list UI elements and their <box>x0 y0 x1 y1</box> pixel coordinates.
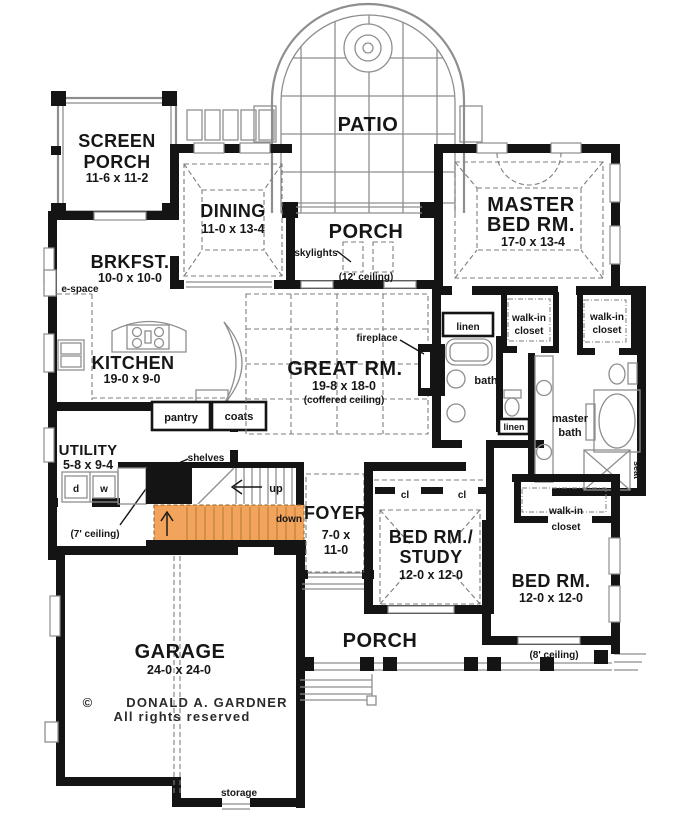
toilet-icon <box>609 363 637 384</box>
patio-area: PATIO <box>254 4 482 213</box>
porch-column <box>300 657 314 671</box>
vanity-icon <box>535 356 553 482</box>
e-space-label: e-space <box>61 284 99 295</box>
copyright-name: DONALD A. GARDNER <box>126 695 287 710</box>
master-dims: 17-0 x 13-4 <box>501 235 565 249</box>
sink-icon <box>447 404 465 422</box>
stairs-up-label: up <box>269 483 283 495</box>
great-room: GREAT RM. 19-8 x 18-0 (coffered ceiling)… <box>246 294 445 434</box>
foyer-dims1: 7-0 x <box>322 528 351 542</box>
bathtub-icon <box>446 339 492 365</box>
pantry-label: pantry <box>164 412 199 424</box>
dining-room: DINING 11-0 x 13-4 <box>184 143 282 276</box>
staircase: up down <box>146 462 306 547</box>
foyer-dims2: 11-0 <box>324 543 348 557</box>
master-bath-label2: bath <box>558 427 582 439</box>
ceiling-7-label: (7' ceiling) <box>70 529 119 540</box>
e-space-nook <box>44 270 56 296</box>
screen-porch: SCREEN PORCH 11-6 x 11-2 <box>51 91 177 218</box>
master-label1: MASTER <box>487 194 575 216</box>
foyer: FOYER 7-0 x 11-0 <box>304 474 368 572</box>
fireplace-icon <box>418 344 445 396</box>
storage-label: storage <box>221 788 258 799</box>
porch-column <box>487 657 501 671</box>
wall-bumpout <box>45 722 58 742</box>
kitchen-label: KITCHEN <box>92 353 175 373</box>
washer-dryer-icons: d w <box>62 472 118 502</box>
bed-rm-label: BED RM. <box>512 571 591 591</box>
patio-fountain-icon <box>344 24 392 72</box>
skylight <box>343 242 363 272</box>
rear-porch-label: PORCH <box>329 221 404 243</box>
porch-column <box>360 657 374 671</box>
bed-study-dims: 12-0 x 12-0 <box>399 568 463 582</box>
rear-porch: PORCH skylights (12' ceiling) <box>294 221 416 288</box>
patio-label: PATIO <box>338 114 399 136</box>
master-label2: BED RM. <box>487 214 575 236</box>
floor-plan-page: PATIO SCREEN PORCH 11-6 x 11-2 <box>0 0 700 830</box>
utility-label: UTILITY <box>59 442 118 459</box>
understair-closet <box>146 468 192 504</box>
floor-plan-drawing: PATIO SCREEN PORCH 11-6 x 11-2 <box>0 0 700 830</box>
screen-porch-dims: 11-6 x 11-2 <box>86 171 149 185</box>
garden-tub-icon <box>586 390 640 452</box>
garage-dims: 24-0 x 24-0 <box>147 663 211 677</box>
porch-column <box>464 657 478 671</box>
garage-label: GARAGE <box>135 641 226 663</box>
porch-post <box>51 146 61 155</box>
porch-column <box>383 657 397 671</box>
porch-post <box>51 91 66 106</box>
toilet-icon <box>504 390 521 416</box>
dining-label: DINING <box>200 201 265 221</box>
refrigerator-icon <box>58 340 84 370</box>
bar-counter-inner <box>224 322 236 404</box>
window <box>50 596 60 636</box>
kitchen-dims: 19-0 x 9-0 <box>104 372 161 386</box>
copyright-rights: All rights reserved <box>114 709 251 724</box>
bar-counter <box>224 322 242 404</box>
bed-rm-dims: 12-0 x 12-0 <box>519 591 583 605</box>
dining-dims: 11-0 x 13-4 <box>201 222 264 236</box>
closet-left-label: cl <box>401 490 410 501</box>
seat-label: seat <box>632 461 642 479</box>
porch-post <box>162 91 177 106</box>
window <box>44 428 54 462</box>
garage: GARAGE 24-0 x 24-0 © DONALD A. GARDNER A… <box>45 556 288 799</box>
brkfst-dims: 10-0 x 10-0 <box>98 271 162 285</box>
master-bath-label1: master <box>552 413 589 425</box>
kitchen-island <box>112 322 186 353</box>
linen-top-label: linen <box>456 322 479 333</box>
shower-icon <box>584 450 630 490</box>
utility-dims: 5-8 x 9-4 <box>63 458 113 472</box>
window <box>518 637 580 644</box>
master-bath: master bath seat <box>535 294 646 496</box>
screen-porch-label1: SCREEN <box>78 131 155 151</box>
screen-porch-label2: PORCH <box>83 152 150 172</box>
porch-steps-right <box>614 654 646 670</box>
window <box>551 143 581 153</box>
walkin3-label2: closet <box>552 522 582 533</box>
breakfast-kitchen: BRKFST. 10-0 x 10-0 e-space KITCHEN 19-0… <box>44 212 266 430</box>
porch-column <box>594 650 608 664</box>
walkin2-label1: walk-in <box>589 312 624 323</box>
master-bedroom: MASTER BED RM. 17-0 x 13-4 <box>455 143 620 278</box>
walkin-closet-2: walk-in closet <box>577 292 638 355</box>
dryer-label: d <box>73 484 79 495</box>
window <box>610 226 620 264</box>
bed-study-label1: BED RM./ <box>389 527 473 547</box>
brkfst-label: BRKFST. <box>91 252 170 272</box>
porch-column <box>540 657 554 671</box>
window <box>388 606 454 613</box>
skylights-label: skylights <box>294 248 338 259</box>
shelves-closet <box>118 468 146 504</box>
great-rm-label: GREAT RM. <box>287 358 402 380</box>
stairs-down-label: down <box>276 514 302 525</box>
window <box>44 334 54 372</box>
walkin1-label2: closet <box>515 326 545 337</box>
window <box>609 538 620 574</box>
master-bed-arch <box>497 153 561 185</box>
bedroom-study: cl cl BED RM./ STUDY 12-0 x 12-0 <box>364 462 494 614</box>
window <box>477 143 507 153</box>
washer-label: w <box>99 484 108 495</box>
bedroom-2: walk-in closet BED RM. 12-0 x 12-0 (8' c… <box>482 474 620 661</box>
great-rm-ceiling-label: (coffered ceiling) <box>304 395 385 406</box>
fireplace-label: fireplace <box>356 333 398 344</box>
closet-right-label: cl <box>458 490 467 501</box>
toilet-icon <box>447 370 465 388</box>
rear-porch-ceiling-label: (12' ceiling) <box>339 272 394 283</box>
window <box>240 143 270 153</box>
walkin2-label2: closet <box>593 325 623 336</box>
door-opening <box>94 212 146 220</box>
walkin-closet-1: walk-in closet <box>501 292 559 353</box>
window <box>609 586 620 622</box>
skylight <box>373 242 393 272</box>
walkin3-label1: walk-in <box>548 506 583 517</box>
linen-mid-label: linen <box>503 422 524 432</box>
rear-porch-post <box>420 202 436 218</box>
bed-study-label2: STUDY <box>399 547 462 567</box>
foyer-ceiling <box>306 474 364 572</box>
bath-label: bath <box>474 375 498 387</box>
foyer-label: FOYER <box>304 503 368 523</box>
window <box>610 164 620 202</box>
coats-label: coats <box>225 411 254 423</box>
great-rm-dims: 19-8 x 18-0 <box>312 379 376 393</box>
porch-steps-left <box>300 674 376 705</box>
window <box>194 143 224 153</box>
front-porch-label: PORCH <box>343 630 418 652</box>
window <box>301 281 333 288</box>
rear-porch-post <box>282 202 298 218</box>
copyright-symbol: © <box>83 695 94 710</box>
walkin1-label1: walk-in <box>511 313 546 324</box>
